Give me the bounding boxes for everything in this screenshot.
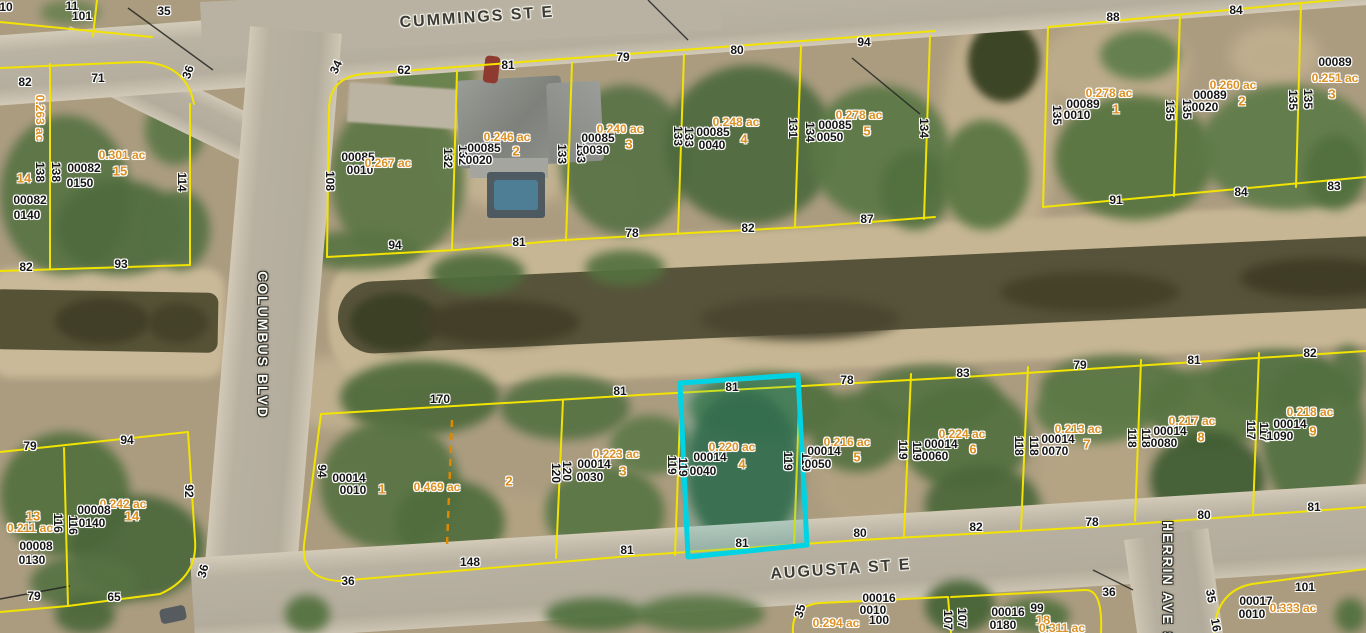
lot-number-label: 2: [505, 475, 512, 488]
terrain-blob: [635, 595, 765, 633]
canal-water-shadow: [55, 298, 150, 344]
parcel-id-label: 00089: [1193, 89, 1226, 101]
terrain-blob: [1335, 598, 1366, 633]
canal-water-shadow: [420, 300, 580, 345]
aerial-parcel-map[interactable]: 1011101353682710.263 ac14000820140138138…: [0, 0, 1366, 633]
terrain-blob: [150, 190, 210, 270]
terrain-blob: [545, 598, 645, 631]
acreage-label: 0.294 ac: [813, 617, 860, 629]
terrain-blob: [500, 375, 630, 440]
dimension-label: 101: [1295, 581, 1315, 593]
terrain-blob: [1000, 598, 1070, 633]
parcel-id-label: 0010: [1239, 608, 1266, 620]
terrain-blob: [55, 596, 115, 633]
road-herrin-ave: [1124, 528, 1225, 633]
driveway: [347, 82, 468, 130]
terrain-blob: [1100, 30, 1180, 80]
dimension-label: 114: [176, 172, 188, 191]
terrain-blob: [925, 580, 995, 633]
dimension-label: 10: [0, 1, 13, 13]
parcel-id-label: 00017: [1239, 595, 1272, 607]
terrain-blob: [430, 252, 525, 294]
terrain-blob: [610, 415, 690, 475]
gray-car: [159, 604, 188, 624]
canal-water-shadow: [700, 298, 900, 340]
dimension-label: 92: [183, 484, 195, 497]
terrain-blob: [1305, 135, 1365, 210]
dimension-label: 94: [120, 434, 133, 446]
dimension-label: 36: [1102, 586, 1115, 598]
dimension-label: 35: [792, 603, 807, 619]
terrain-blob: [1055, 95, 1215, 220]
parcel-id-label: 0010: [860, 604, 887, 616]
terrain-blob: [40, 0, 100, 25]
terrain-blob: [810, 392, 905, 472]
dimension-label: 100: [869, 614, 889, 626]
acreage-label: 0.333 ac: [1270, 602, 1317, 614]
house-roof-wing: [546, 81, 604, 164]
swimming-pool: [494, 180, 538, 210]
acreage-label: 0.260 ac: [1210, 79, 1257, 91]
dimension-label: 118: [1140, 428, 1152, 447]
parcel-id-label: 00089: [1318, 56, 1351, 68]
canal-water-shadow: [1000, 272, 1180, 312]
terrain-blob: [1230, 25, 1320, 85]
canal-water-shadow: [148, 303, 208, 343]
terrain-blob: [880, 150, 950, 230]
acreage-label: 0.251 ac: [1312, 72, 1359, 84]
dimension-label: 78: [840, 374, 853, 386]
terrain-blob: [940, 120, 1030, 230]
highlighted-parcel[interactable]: [680, 375, 807, 557]
dimension-label: 35: [157, 5, 170, 17]
dimension-label: 81: [1187, 354, 1200, 366]
terrain-blob: [585, 250, 665, 286]
terrain-blob: [1035, 378, 1155, 443]
terrain-blob: [285, 595, 330, 633]
